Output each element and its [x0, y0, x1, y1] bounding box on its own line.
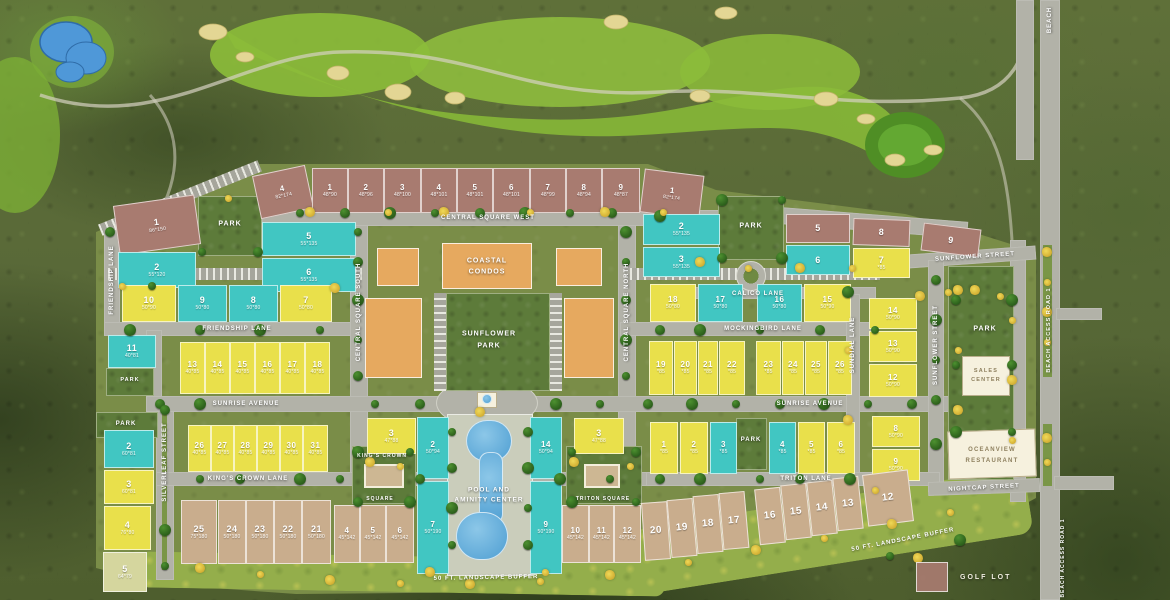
lot-8[interactable]: 850*80 — [229, 285, 278, 322]
tree — [886, 552, 894, 560]
lot-number: 22 — [282, 525, 293, 534]
lot-dimensions: 75*180 — [190, 535, 207, 540]
tree — [864, 400, 872, 408]
lot-number: 15 — [823, 296, 833, 304]
lot-dimensions: 40*85 — [185, 370, 199, 375]
tree — [194, 398, 206, 410]
lot-number: 24 — [226, 525, 237, 534]
lot-number: 10 — [143, 296, 154, 305]
lot-dimensions: 48*101 — [466, 193, 483, 198]
pool-lower — [456, 512, 508, 560]
lot-3[interactable]: 3*85 — [710, 422, 737, 474]
lot-dimensions: 48*87 — [614, 193, 628, 198]
lot-dimensions: 40*85 — [215, 451, 229, 456]
lot-number: 5 — [371, 527, 376, 535]
flower-bed — [945, 289, 952, 296]
lot-dimensions: 50*80 — [666, 305, 680, 310]
lot-3[interactable]: 347*88 — [574, 418, 624, 454]
condo-building — [556, 248, 602, 286]
lot-dimensions: 48*94 — [577, 193, 591, 198]
tree — [568, 448, 576, 456]
lot-22[interactable]: 2250*180 — [274, 500, 302, 564]
lot-number: 3 — [126, 480, 132, 489]
lot-dimensions: 50*90 — [886, 383, 900, 388]
lot-24[interactable]: 24*85 — [782, 341, 804, 395]
tree — [431, 209, 439, 217]
tree — [446, 502, 458, 514]
lot-number: 7 — [546, 184, 551, 192]
tree — [148, 282, 156, 290]
tree — [596, 400, 604, 408]
tree — [1006, 294, 1018, 306]
lot-dimensions: 40*85 — [260, 370, 274, 375]
tree — [448, 428, 456, 436]
lot-number: 10 — [571, 527, 581, 535]
lot-number: 18 — [313, 361, 323, 369]
lot-17[interactable]: 17 — [719, 491, 750, 550]
lot-7[interactable]: 7*85 — [853, 248, 910, 278]
lot-9[interactable]: 950*190 — [530, 481, 562, 574]
fountain-pool — [482, 394, 492, 404]
lot-dimensions: 50*94 — [539, 450, 553, 455]
lot-dimensions: 76*80 — [120, 531, 134, 536]
flower-bed — [953, 285, 963, 295]
lot-17[interactable]: 1740*85 — [280, 342, 305, 394]
park-walk-west — [434, 293, 446, 391]
lot-number: 28 — [241, 442, 251, 450]
lot-dimensions: 45*142 — [364, 536, 381, 541]
flower-bed — [330, 283, 340, 293]
lot-number: 11 — [127, 344, 138, 353]
tree — [160, 405, 170, 415]
lot-number: 15 — [238, 361, 248, 369]
lot-12[interactable]: 1250*90 — [869, 364, 917, 397]
lot-number: 3 — [400, 184, 405, 192]
tree — [871, 326, 879, 334]
lot-7[interactable]: 750*80 — [280, 285, 332, 322]
tree — [631, 447, 641, 457]
lot-1[interactable]: 1*85 — [650, 422, 678, 474]
tree — [566, 209, 574, 217]
lot-number: 9 — [200, 296, 206, 305]
lot-number: 3 — [389, 429, 395, 438]
flower-bed — [751, 545, 761, 555]
lot-dimensions: 50*90 — [886, 316, 900, 321]
lot-dimensions: 55*135 — [673, 232, 690, 237]
lot-5[interactable]: 555*135 — [262, 222, 356, 256]
tree — [620, 226, 632, 238]
tree — [522, 462, 534, 474]
lot-dimensions: 50*94 — [426, 450, 440, 455]
label-center: CENTER — [971, 377, 1001, 383]
oceanview-restaurant-building — [947, 428, 1037, 479]
label-sunflower-street: SUNFLOWER STREET — [933, 305, 939, 385]
lot-number: 5 — [306, 232, 312, 241]
lot-11[interactable]: 1145*142 — [589, 505, 614, 563]
lot-dimensions: 50*80 — [713, 305, 727, 310]
lot-dimensions: *85 — [877, 266, 885, 271]
lot-dimensions: 50*180 — [308, 535, 325, 540]
tree — [694, 324, 706, 336]
tree — [931, 395, 941, 405]
lot-dimensions: 45*142 — [338, 536, 355, 541]
lot-dimensions: 40*85 — [285, 370, 299, 375]
lot-8[interactable]: 848*94 — [566, 168, 602, 213]
triton-square-building — [584, 464, 620, 488]
lot-2[interactable]: 260*81 — [104, 430, 154, 468]
lot-dimensions: 82*174 — [275, 192, 293, 200]
lot-number: 17 — [716, 296, 726, 304]
lot-25[interactable]: 25*85 — [805, 341, 827, 395]
lot-14[interactable]: 1450*90 — [869, 298, 917, 329]
lot-number: 9 — [544, 521, 549, 529]
flower-bed — [821, 535, 828, 542]
lot-6[interactable]: 645*142 — [386, 505, 414, 563]
lot-16[interactable]: 1640*85 — [255, 342, 280, 394]
tree — [294, 473, 306, 485]
lot-10[interactable]: 1050*90 — [122, 285, 176, 322]
label-park: PARK — [741, 437, 762, 443]
lot-1[interactable]: 148*90 — [312, 168, 348, 213]
lot-dimensions: *85 — [660, 450, 668, 455]
lot-number: 17 — [288, 361, 298, 369]
east-stub-road — [1056, 308, 1102, 320]
lot-number: 23 — [254, 525, 265, 534]
flower-bed — [872, 487, 879, 494]
lot-27[interactable]: 2740*85 — [211, 425, 234, 472]
tree — [632, 498, 640, 506]
park-walk-east — [550, 293, 562, 391]
label-beach-access-road-1: BEACH ACCESS ROAD 1 — [1060, 518, 1066, 597]
tree — [550, 398, 562, 410]
flower-bed — [605, 570, 615, 580]
flower-bed — [1009, 437, 1016, 444]
label-sales: SALES — [974, 368, 998, 374]
lot-number: 20 — [681, 361, 691, 369]
tree — [415, 474, 425, 484]
tree — [161, 562, 169, 570]
lot-dimensions: 40*81 — [125, 354, 139, 359]
lot-dimensions: 45*142 — [567, 536, 584, 541]
flower-bed — [1044, 279, 1051, 286]
tree — [448, 541, 456, 549]
tree — [340, 208, 350, 218]
label-park: PARK — [120, 377, 139, 383]
label-central-square-west: CENTRAL SQUARE WEST — [441, 215, 535, 221]
lot-number: 7 — [879, 256, 885, 265]
lot-9[interactable]: 950*80 — [178, 285, 227, 322]
lot-dimensions: 50*180 — [279, 535, 296, 540]
tree — [124, 324, 136, 336]
label-central-square-north: CENTRAL SQUARE NORTH — [624, 263, 630, 362]
lot-3[interactable]: 355*135 — [643, 247, 720, 277]
flower-bed — [1042, 247, 1052, 257]
lot-19[interactable]: 19*85 — [649, 341, 673, 395]
lot-dimensions: 55*135 — [300, 278, 317, 283]
lot-number: 14 — [888, 307, 898, 315]
tree — [523, 427, 533, 437]
legend-golf-lot-swatch — [916, 562, 948, 592]
tree — [1008, 428, 1016, 436]
lot-dimensions: 40*85 — [210, 370, 224, 375]
label-square: SQUARE — [366, 496, 393, 502]
lot-number: 25 — [811, 361, 821, 369]
lot-5[interactable]: 5 — [786, 214, 850, 243]
lot-20[interactable]: 20*85 — [674, 341, 697, 395]
lot-dimensions: 50*90 — [142, 306, 156, 311]
lot-dimensions: 40*85 — [284, 451, 298, 456]
tree — [105, 227, 115, 237]
tree — [952, 361, 960, 369]
lot-3[interactable]: 360*81 — [104, 470, 154, 504]
lot-2[interactable]: 255*120 — [118, 252, 196, 288]
lot-number: 11 — [597, 527, 606, 535]
lot-dimensions: *85 — [778, 450, 786, 455]
lot-dimensions: 50*90 — [820, 305, 834, 310]
lot-dimensions: *85 — [789, 370, 797, 375]
lot-dimensions: 48*96 — [359, 193, 373, 198]
lot-number: 13 — [841, 498, 854, 509]
lot-number: 8 — [251, 296, 257, 305]
lot-dimensions: 50*80 — [246, 306, 260, 311]
label-triton-lane: TRITON LANE — [780, 476, 831, 482]
lot-number: 6 — [509, 184, 514, 192]
lot-number: 27 — [218, 442, 228, 450]
lot-number: 14 — [541, 441, 551, 449]
lot-number: 7 — [431, 521, 436, 529]
lot-18[interactable]: 1850*80 — [650, 284, 696, 322]
lot-5[interactable]: 548*101 — [457, 168, 493, 213]
lot-9[interactable]: 948*87 — [602, 168, 640, 213]
lot-number: 21 — [703, 361, 713, 369]
label-beach-access-road-1: BEACH ACCESS ROAD 1 — [1046, 287, 1052, 372]
lot-number: 18 — [668, 296, 678, 304]
lot-4[interactable]: 476*80 — [104, 506, 151, 550]
label-friendship-lane: FRIENDSHIP LANE — [202, 326, 271, 332]
lot-number: 1 — [328, 184, 333, 192]
lot-number: 25 — [193, 525, 204, 534]
tree — [524, 504, 532, 512]
lot-23[interactable]: 23*85 — [756, 341, 781, 395]
label-mockingbird-lane: MOCKINGBIRD LANE — [724, 326, 802, 332]
lot-1[interactable]: 182*174 — [640, 169, 705, 220]
lot-number: 16 — [263, 361, 273, 369]
flower-bed — [843, 415, 853, 425]
lot-number: 3 — [679, 255, 685, 264]
lot-dimensions: *85 — [719, 450, 727, 455]
tree — [353, 497, 363, 507]
lot-dimensions: 40*85 — [310, 370, 324, 375]
lot-13[interactable]: 1350*90 — [869, 331, 917, 362]
lot-31[interactable]: 3140*85 — [303, 425, 328, 472]
label-park: PARK — [218, 221, 241, 228]
label-sunrise-avenue: SUNRISE AVENUE — [777, 401, 844, 407]
lot-dimensions: 86*150 — [149, 226, 167, 233]
flower-bed — [795, 263, 805, 273]
tree — [159, 524, 171, 536]
lot-2[interactable]: 2*85 — [680, 422, 708, 474]
lot-number: 4 — [345, 527, 350, 535]
lot-dimensions: 55*135 — [673, 265, 690, 270]
label-restaurant: RESTAURANT — [966, 458, 1019, 464]
flower-bed — [955, 347, 962, 354]
condo-building — [564, 298, 614, 378]
tree — [655, 474, 665, 484]
legend: GOLF LOT — [916, 562, 1011, 592]
lot-number: 5 — [809, 441, 814, 449]
label-sundial-lane: SUNDIAL LANE — [850, 317, 856, 374]
condo-building — [377, 248, 419, 286]
lot-number: 6 — [839, 441, 844, 449]
lot-dimensions: 50*180 — [223, 535, 240, 540]
flower-bed — [1007, 375, 1017, 385]
lot-21[interactable]: 21*85 — [698, 341, 718, 395]
sales-center-building — [962, 356, 1010, 396]
flower-bed — [1044, 459, 1051, 466]
lot-number: 16 — [763, 510, 776, 521]
flower-bed — [627, 463, 634, 470]
lot-17[interactable]: 1750*80 — [698, 284, 743, 322]
lot-number: 24 — [788, 361, 798, 369]
lot-number: 8 — [879, 228, 885, 237]
tree — [842, 286, 854, 298]
lot-26[interactable]: 2640*85 — [188, 425, 211, 472]
lot-4[interactable]: 445*142 — [334, 505, 360, 563]
lot-number: 19 — [676, 522, 689, 533]
lot-30[interactable]: 3040*85 — [280, 425, 303, 472]
flower-bed — [385, 209, 392, 216]
lot-2[interactable]: 250*94 — [417, 417, 449, 479]
tree — [951, 295, 961, 305]
lot-number: 8 — [894, 425, 899, 433]
lot-number: 30 — [287, 442, 297, 450]
flower-bed — [325, 575, 335, 585]
lot-number: 12 — [623, 527, 633, 535]
lot-12[interactable]: 1245*142 — [614, 505, 641, 563]
tree — [950, 426, 962, 438]
lot-number: 14 — [815, 502, 828, 513]
lot-18[interactable]: 1840*85 — [305, 342, 330, 394]
tree — [778, 196, 786, 204]
lot-8[interactable]: 850*90 — [872, 416, 920, 447]
lot-7[interactable]: 750*190 — [417, 481, 449, 574]
lot-10[interactable]: 1045*142 — [562, 505, 589, 563]
lot-dimensions: 48*99 — [541, 193, 555, 198]
lot-dimensions: 47*88 — [384, 439, 398, 444]
tree — [316, 326, 324, 334]
label-triton-square: TRITON SQUARE — [576, 496, 630, 502]
service-road-north — [1016, 0, 1034, 160]
flower-bed — [397, 580, 404, 587]
lot-15[interactable]: 1540*85 — [230, 342, 255, 394]
lot-14[interactable]: 1450*94 — [530, 417, 562, 479]
lot-number: 6 — [306, 268, 312, 277]
label-king-s-crown-lane: KING'S CROWN LANE — [208, 476, 288, 482]
lot-number: 5 — [815, 224, 821, 233]
label-coastal: COASTAL — [467, 258, 507, 265]
tree — [523, 540, 533, 550]
lot-5[interactable]: 5*85 — [798, 422, 825, 474]
lot-dimensions: 50*80 — [299, 306, 313, 311]
lot-number: 9 — [894, 458, 899, 466]
flower-bed — [947, 509, 954, 516]
tree — [930, 438, 942, 450]
tree — [415, 399, 425, 409]
lot-22[interactable]: 22*85 — [719, 341, 745, 395]
lot-4[interactable]: 4*85 — [769, 422, 796, 474]
lot-dimensions: 40*85 — [308, 451, 322, 456]
tree — [694, 473, 706, 485]
lot-14[interactable]: 1440*85 — [205, 342, 230, 394]
lot-number: 3 — [596, 429, 602, 438]
tree — [253, 247, 263, 257]
tree — [406, 448, 414, 456]
lot-2[interactable]: 248*96 — [348, 168, 384, 213]
lot-6[interactable]: 6*85 — [827, 422, 855, 474]
lot-number: 1 — [662, 441, 667, 449]
label-park: PARK — [973, 326, 996, 333]
lot-number: 6 — [815, 256, 821, 265]
lot-12[interactable]: 12 — [862, 469, 914, 526]
lot-7[interactable]: 748*99 — [530, 168, 566, 213]
flower-bed — [569, 457, 579, 467]
tree — [732, 400, 740, 408]
lot-number: 2 — [679, 222, 685, 231]
lot-dimensions: 45*142 — [619, 536, 636, 541]
tree — [447, 463, 457, 473]
lot-number: 3 — [721, 441, 726, 449]
lot-4[interactable]: 448*101 — [421, 168, 457, 213]
lot-21[interactable]: 2150*180 — [302, 500, 331, 564]
tree — [844, 473, 856, 485]
park-center-south — [736, 418, 767, 470]
lot-dimensions: 47*88 — [592, 439, 606, 444]
lot-number: 5 — [122, 565, 128, 574]
label-aminity-center: AMINITY CENTER — [454, 497, 523, 504]
tree — [622, 372, 630, 380]
lot-number: 16 — [775, 296, 785, 304]
lot-number: 23 — [764, 361, 774, 369]
lot-number: 29 — [264, 442, 274, 450]
flower-bed — [685, 559, 692, 566]
lot-11[interactable]: 1140*81 — [108, 335, 156, 368]
tree — [776, 252, 788, 264]
lot-dimensions: 50*190 — [424, 530, 441, 535]
lot-24[interactable]: 2450*180 — [218, 500, 246, 564]
lot-23[interactable]: 2350*180 — [246, 500, 274, 564]
lot-13[interactable]: 1340*85 — [180, 342, 205, 394]
flower-bed — [953, 405, 963, 415]
lot-number: 12 — [881, 492, 894, 503]
lot-16[interactable]: 1650*80 — [757, 284, 802, 322]
flower-bed — [745, 265, 752, 272]
lot-8[interactable]: 8 — [853, 218, 911, 247]
lot-5[interactable]: 545*142 — [360, 505, 386, 563]
lot-28[interactable]: 2840*85 — [234, 425, 257, 472]
lot-5[interactable]: 564*79 — [103, 552, 147, 592]
lot-dimensions: 64*79 — [118, 575, 132, 580]
lot-dimensions: 60*81 — [122, 490, 136, 495]
lot-25[interactable]: 2575*180 — [181, 500, 217, 564]
lot-dimensions: *85 — [764, 370, 772, 375]
tree — [954, 534, 966, 546]
lot-dimensions: *85 — [690, 450, 698, 455]
tree — [354, 228, 362, 236]
lot-dimensions: 50*90 — [886, 349, 900, 354]
lot-dimensions: *85 — [812, 370, 820, 375]
lot-29[interactable]: 2940*85 — [257, 425, 280, 472]
flower-bed — [849, 265, 856, 272]
